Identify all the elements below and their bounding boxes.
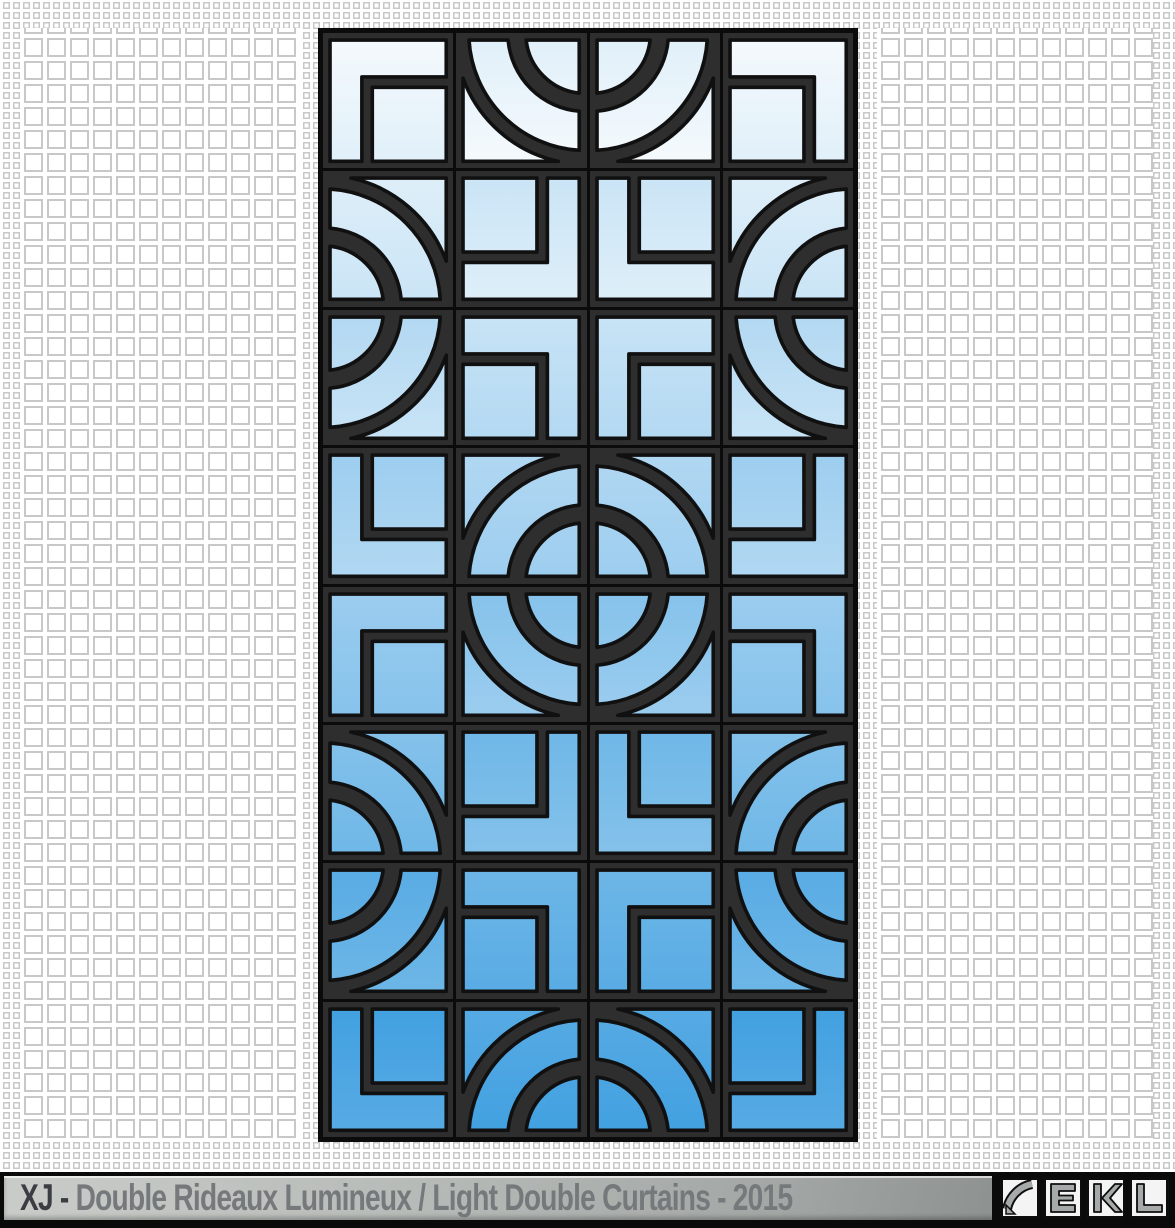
tile-motif-arcs-tr bbox=[456, 587, 586, 722]
tile-motif-corner-br bbox=[323, 587, 453, 722]
tile-motif-arcs-tl bbox=[590, 33, 720, 168]
logo-glyph-letter-K bbox=[1089, 1180, 1123, 1216]
artwork-title-prefix: XJ - bbox=[20, 1177, 76, 1218]
tile-motif-corner-bl bbox=[723, 587, 853, 722]
tile-motif-arcs-br bbox=[456, 1002, 586, 1137]
logo-box-arc-glyph bbox=[1000, 1177, 1040, 1219]
tile-r5c1-corner-br bbox=[323, 587, 453, 722]
background-large-square-field-right bbox=[877, 28, 1153, 1142]
tile-r2c3-corner-tr bbox=[590, 171, 720, 306]
tile-r8c4-corner-tl bbox=[723, 1002, 853, 1137]
tile-motif-arcs-tl bbox=[323, 863, 453, 998]
tile-r2c2-corner-tl bbox=[456, 171, 586, 306]
mosaic-panel bbox=[318, 28, 858, 1142]
tile-r2c1-arcs-bl bbox=[323, 171, 453, 306]
tile-motif-corner-tl bbox=[456, 171, 586, 306]
tile-r6c1-arcs-bl bbox=[323, 725, 453, 860]
tile-r8c1-corner-tr bbox=[323, 1002, 453, 1137]
tile-r6c2-corner-tl bbox=[456, 725, 586, 860]
tile-motif-arcs-bl bbox=[590, 1002, 720, 1137]
tile-r3c3-corner-br bbox=[590, 310, 720, 445]
logo-glyph-letter-L bbox=[1132, 1180, 1166, 1216]
tile-motif-arcs-br bbox=[456, 448, 586, 583]
artwork-title-text: Double Rideaux Lumineux / Light Double C… bbox=[76, 1177, 793, 1218]
tile-r7c1-arcs-tl bbox=[323, 863, 453, 998]
tile-r6c4-arcs-br bbox=[723, 725, 853, 860]
tile-r1c2-arcs-tr bbox=[456, 33, 586, 168]
tile-motif-arcs-br bbox=[723, 725, 853, 860]
tile-r8c2-arcs-br bbox=[456, 1002, 586, 1137]
tile-motif-corner-bl bbox=[456, 863, 586, 998]
tile-r6c3-corner-tr bbox=[590, 725, 720, 860]
tile-motif-corner-bl bbox=[723, 33, 853, 168]
tile-motif-corner-bl bbox=[456, 310, 586, 445]
logo-box-letter-L bbox=[1129, 1177, 1169, 1219]
tile-r8c3-arcs-bl bbox=[590, 1002, 720, 1137]
tile-r5c3-arcs-tl bbox=[590, 587, 720, 722]
logo-glyph-letter-E bbox=[1046, 1180, 1080, 1216]
tile-motif-arcs-tr bbox=[456, 33, 586, 168]
tile-motif-arcs-tl bbox=[590, 587, 720, 722]
tile-r7c3-corner-br bbox=[590, 863, 720, 998]
tile-r5c2-arcs-tr bbox=[456, 587, 586, 722]
logo-box-letter-E bbox=[1043, 1177, 1083, 1219]
tile-r4c4-corner-tl bbox=[723, 448, 853, 583]
tile-r3c4-arcs-tr bbox=[723, 310, 853, 445]
tile-motif-arcs-bl bbox=[323, 171, 453, 306]
tile-motif-corner-br bbox=[323, 33, 453, 168]
tile-motif-corner-tr bbox=[590, 725, 720, 860]
tile-r3c2-corner-bl bbox=[456, 310, 586, 445]
tile-r4c2-arcs-br bbox=[456, 448, 586, 583]
tile-r5c4-corner-bl bbox=[723, 587, 853, 722]
tile-motif-corner-tr bbox=[323, 448, 453, 583]
tile-r1c1-corner-br bbox=[323, 33, 453, 168]
tile-motif-arcs-bl bbox=[323, 725, 453, 860]
logo-glyph-arc-glyph bbox=[1003, 1180, 1037, 1216]
tile-motif-corner-tr bbox=[590, 171, 720, 306]
artwork-page: XJ - Double Rideaux Lumineux / Light Dou… bbox=[0, 0, 1175, 1228]
tile-r7c4-arcs-tr bbox=[723, 863, 853, 998]
tile-r2c4-arcs-br bbox=[723, 171, 853, 306]
tile-r1c3-arcs-tl bbox=[590, 33, 720, 168]
logo-box-letter-K bbox=[1086, 1177, 1126, 1219]
tile-r3c1-arcs-tl bbox=[323, 310, 453, 445]
tile-motif-arcs-br bbox=[723, 171, 853, 306]
tile-r7c2-corner-bl bbox=[456, 863, 586, 998]
background-large-square-field-left bbox=[20, 28, 300, 1142]
tile-motif-arcs-tl bbox=[323, 310, 453, 445]
tile-r4c1-corner-tr bbox=[323, 448, 453, 583]
tile-r4c3-arcs-bl bbox=[590, 448, 720, 583]
tile-motif-corner-tl bbox=[723, 448, 853, 583]
tile-motif-arcs-tr bbox=[723, 863, 853, 998]
footer-bar: XJ - Double Rideaux Lumineux / Light Dou… bbox=[0, 1172, 1175, 1228]
tile-motif-corner-tl bbox=[456, 725, 586, 860]
artwork-title: XJ - Double Rideaux Lumineux / Light Dou… bbox=[20, 1177, 792, 1219]
tile-motif-corner-tr bbox=[323, 1002, 453, 1137]
tile-motif-arcs-bl bbox=[590, 448, 720, 583]
tile-motif-arcs-tr bbox=[723, 310, 853, 445]
tile-motif-corner-br bbox=[590, 863, 720, 998]
tile-grid bbox=[323, 33, 853, 1137]
tile-motif-corner-br bbox=[590, 310, 720, 445]
tile-r1c4-corner-bl bbox=[723, 33, 853, 168]
tile-motif-corner-tl bbox=[723, 1002, 853, 1137]
artist-logo bbox=[992, 1174, 1171, 1222]
